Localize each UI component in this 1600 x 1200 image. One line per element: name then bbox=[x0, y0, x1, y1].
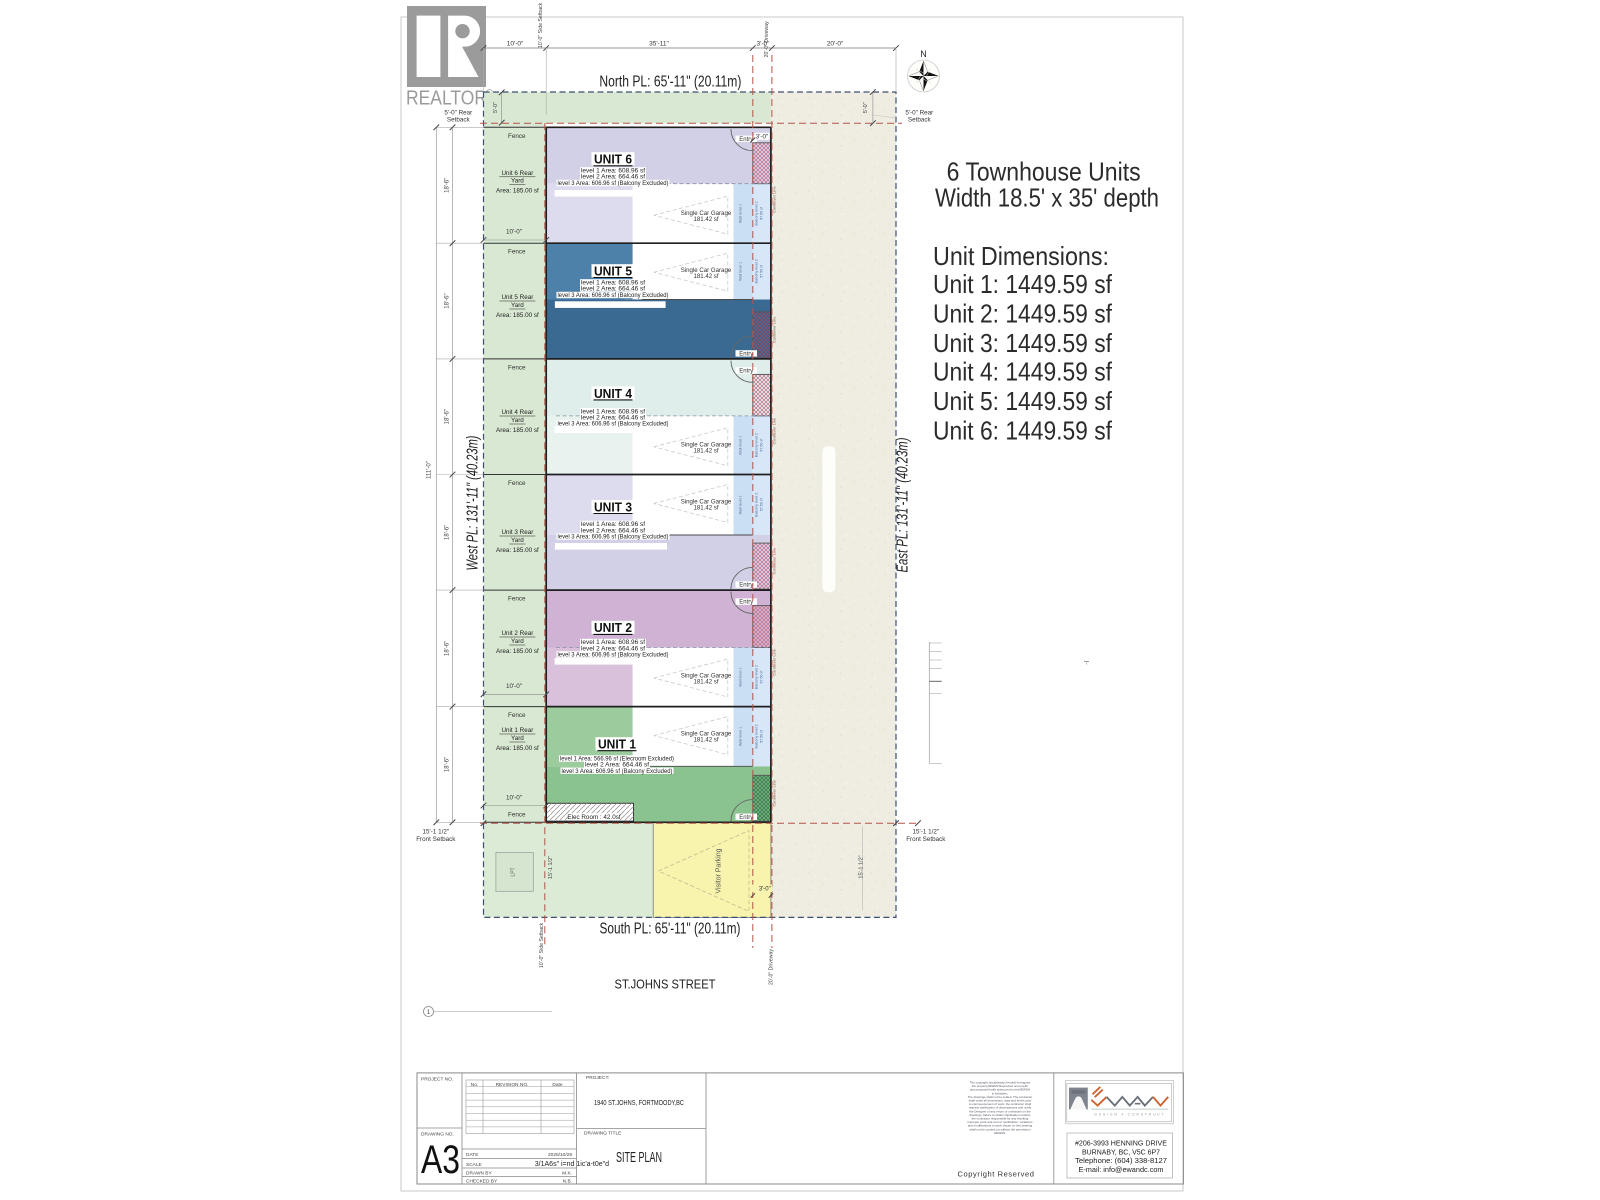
svg-text:18'-6": 18'-6" bbox=[444, 409, 450, 424]
svg-text:Unit 6: 1449.59 sf: Unit 6: 1449.59 sf bbox=[933, 416, 1113, 446]
svg-text:181.42 sf: 181.42 sf bbox=[693, 679, 718, 686]
svg-text:SITE PLAN: SITE PLAN bbox=[616, 1150, 662, 1166]
svg-text:Wall level 1: Wall level 1 bbox=[739, 727, 743, 746]
svg-text:Fence: Fence bbox=[508, 712, 526, 719]
svg-text:57.50 sf: 57.50 sf bbox=[760, 498, 764, 511]
svg-text:Unit 4 Rear: Unit 4 Rear bbox=[501, 409, 533, 416]
svg-text:Wall level 1: Wall level 1 bbox=[739, 262, 743, 281]
svg-text:181.42 sf: 181.42 sf bbox=[693, 216, 718, 223]
svg-text:North PL: 65'-11" (20.11m): North PL: 65'-11" (20.11m) bbox=[599, 74, 741, 91]
svg-text:Wall level 1: Wall level 1 bbox=[739, 495, 743, 514]
svg-text:Unit 4: 1449.59 sf: Unit 4: 1449.59 sf bbox=[933, 357, 1113, 387]
svg-text:Yard: Yard bbox=[511, 302, 524, 309]
svg-text:Fence: Fence bbox=[508, 133, 526, 140]
svg-text:Balcony level 2: Balcony level 2 bbox=[755, 665, 759, 689]
svg-text:Wall level 1: Wall level 1 bbox=[739, 204, 743, 223]
svg-text:Unit 3 Rear: Unit 3 Rear bbox=[501, 529, 533, 536]
svg-text:Telephone: (604) 338-8127: Telephone: (604) 338-8127 bbox=[1075, 1156, 1167, 1165]
svg-text:Yard: Yard bbox=[511, 178, 524, 185]
svg-text:REVISION NO.: REVISION NO. bbox=[496, 1082, 529, 1088]
svg-text:N.B.: N.B. bbox=[563, 1179, 572, 1185]
svg-text:57.50 sf: 57.50 sf bbox=[760, 207, 764, 220]
svg-text:10'-0": 10'-0" bbox=[507, 41, 524, 48]
svg-text:181.42 sf: 181.42 sf bbox=[693, 505, 718, 512]
svg-text:111'-0": 111'-0" bbox=[427, 461, 433, 479]
svg-text:18'-6": 18'-6" bbox=[444, 525, 450, 540]
svg-text:level 3 Area: 606.96 sf (Balco: level 3 Area: 606.96 sf (Balcony Exclude… bbox=[562, 768, 673, 775]
svg-text:57.50 sf: 57.50 sf bbox=[760, 265, 764, 278]
svg-text:#206-3993 HENNING DRIVE: #206-3993 HENNING DRIVE bbox=[1075, 1139, 1167, 1148]
svg-text:A3: A3 bbox=[421, 1138, 460, 1182]
svg-text:Date: Date bbox=[552, 1082, 562, 1088]
svg-text:Fence: Fence bbox=[508, 812, 526, 819]
svg-text:Area: 185.00 sf: Area: 185.00 sf bbox=[496, 547, 539, 554]
svg-text:E-mail: info@ewandc.com: E-mail: info@ewandc.com bbox=[1079, 1165, 1164, 1174]
svg-text:Area: 185.00 sf: Area: 185.00 sf bbox=[496, 427, 539, 434]
svg-text:Unit 2: 1449.59 sf: Unit 2: 1449.59 sf bbox=[933, 298, 1113, 328]
svg-text:Setback: Setback bbox=[908, 116, 932, 123]
svg-text:15'-1 1/2": 15'-1 1/2" bbox=[913, 829, 940, 836]
svg-text:level 3 Area: 606.96 sf (Balco: level 3 Area: 606.96 sf (Balcony Exclude… bbox=[558, 292, 669, 299]
svg-text:Front Setback: Front Setback bbox=[906, 836, 946, 843]
svg-text:level 3 Area: 606.96 sf (Balco: level 3 Area: 606.96 sf (Balcony Exclude… bbox=[558, 180, 669, 187]
svg-text:Balcony level 2: Balcony level 2 bbox=[755, 259, 759, 283]
svg-text:20'-0" Driveway: 20'-0" Driveway bbox=[769, 949, 775, 985]
svg-text:PROJECT NO.: PROJECT NO. bbox=[421, 1077, 453, 1083]
svg-text:Unit 1 Rear: Unit 1 Rear bbox=[501, 727, 533, 734]
svg-text:level 3 Area: 606.96 sf (Balco: level 3 Area: 606.96 sf (Balcony Exclude… bbox=[558, 421, 669, 428]
svg-text:18'-6": 18'-6" bbox=[444, 757, 450, 772]
svg-text:PROJECT:: PROJECT: bbox=[586, 1075, 609, 1081]
svg-text:DRAWN BY: DRAWN BY bbox=[466, 1171, 492, 1177]
svg-text:BURNABY, BC, V5C 6P7: BURNABY, BC, V5C 6P7 bbox=[1082, 1147, 1160, 1156]
svg-text:Wall level 1: Wall level 1 bbox=[739, 667, 743, 686]
svg-text:57.50 sf: 57.50 sf bbox=[760, 671, 764, 684]
svg-text:10'-0" Side Setback: 10'-0" Side Setback bbox=[539, 922, 545, 968]
svg-text:Copyright Reserved: Copyright Reserved bbox=[957, 1169, 1034, 1178]
svg-text:Unit Dimensions:: Unit Dimensions: bbox=[933, 241, 1109, 271]
svg-text:DRAWING NO.: DRAWING NO. bbox=[421, 1132, 454, 1138]
svg-text:Unit 6 Rear: Unit 6 Rear bbox=[501, 170, 533, 177]
svg-text:57.50 sf: 57.50 sf bbox=[760, 439, 764, 452]
svg-text:Balcony level 2: Balcony level 2 bbox=[755, 724, 759, 748]
svg-text:15'-1 1/2": 15'-1 1/2" bbox=[423, 829, 450, 836]
svg-text:Fence: Fence bbox=[508, 480, 526, 487]
svg-text:East PL: 131'-11" (40.23m): East PL: 131'-11" (40.23m) bbox=[894, 438, 911, 573]
svg-text:3/1A6s" i=nd 1ic'a-t0e"d: 3/1A6s" i=nd 1ic'a-t0e"d bbox=[535, 1161, 609, 1168]
svg-text:UNIT 3: UNIT 3 bbox=[594, 500, 632, 514]
svg-text:10'-0": 10'-0" bbox=[506, 683, 522, 690]
svg-text:Unit 5: 1449.59 sf: Unit 5: 1449.59 sf bbox=[933, 386, 1113, 416]
svg-text:3'-0": 3'-0" bbox=[759, 886, 771, 892]
svg-text:5'-0" Rear: 5'-0" Rear bbox=[444, 109, 472, 116]
svg-text:No.: No. bbox=[471, 1082, 478, 1088]
svg-text:57.50 sf: 57.50 sf bbox=[760, 730, 764, 743]
svg-text:10'-0" Side Setback: 10'-0" Side Setback bbox=[538, 2, 544, 48]
svg-text:Visitor Parking: Visitor Parking bbox=[715, 848, 722, 893]
svg-text:5'-0": 5'-0" bbox=[863, 102, 869, 113]
svg-text:DRAWING TITLE: DRAWING TITLE bbox=[584, 1131, 621, 1137]
svg-text:1940 ST.JOHNS, FORTMOODY,BC: 1940 ST.JOHNS, FORTMOODY,BC bbox=[594, 1098, 684, 1107]
svg-text:Fence: Fence bbox=[508, 596, 526, 603]
svg-text:Unit 5 Rear: Unit 5 Rear bbox=[501, 294, 533, 301]
svg-text:Yard: Yard bbox=[511, 735, 524, 742]
svg-text:2025/10/29: 2025/10/29 bbox=[548, 1152, 572, 1158]
svg-text:Fence: Fence bbox=[508, 249, 526, 256]
svg-text:Elec Room : 42.0sf: Elec Room : 42.0sf bbox=[567, 814, 620, 821]
svg-text:Yard: Yard bbox=[511, 638, 524, 645]
svg-text:18'-6": 18'-6" bbox=[444, 178, 450, 193]
svg-text:Entry: Entry bbox=[739, 369, 753, 375]
svg-text:M.K.: M.K. bbox=[562, 1171, 572, 1177]
svg-text:N: N bbox=[920, 49, 927, 59]
svg-text:Unit 3: 1449.59 sf: Unit 3: 1449.59 sf bbox=[933, 328, 1113, 358]
svg-text:LPT: LPT bbox=[511, 867, 517, 876]
svg-text:10'-0": 10'-0" bbox=[506, 229, 522, 236]
svg-text:CHECKED BY: CHECKED BY bbox=[466, 1179, 498, 1185]
svg-text:level 3 Area: 606.96 sf (Balco: level 3 Area: 606.96 sf (Balcony Exclude… bbox=[558, 652, 669, 659]
svg-text:Yard: Yard bbox=[511, 537, 524, 544]
svg-text:Unit 1: 1449.59 sf: Unit 1: 1449.59 sf bbox=[933, 269, 1113, 299]
svg-text:10'-0": 10'-0" bbox=[506, 795, 522, 802]
svg-text:West PL: 131'-11" (40.23m): West PL: 131'-11" (40.23m) bbox=[465, 436, 482, 571]
svg-text:REALTOR: REALTOR bbox=[406, 87, 487, 110]
svg-text:UNIT 5: UNIT 5 bbox=[594, 265, 632, 279]
svg-text:20'-0": 20'-0" bbox=[827, 41, 844, 48]
svg-text:18'-6": 18'-6" bbox=[444, 641, 450, 656]
svg-text:Front Setback: Front Setback bbox=[416, 836, 456, 843]
svg-text:Area: 185.00 sf: Area: 185.00 sf bbox=[496, 745, 539, 752]
svg-text:Entry: Entry bbox=[739, 815, 753, 821]
svg-text:Unit 2 Rear: Unit 2 Rear bbox=[501, 630, 533, 637]
svg-text:15'-1 1/2": 15'-1 1/2" bbox=[548, 856, 554, 879]
svg-text:Entry: Entry bbox=[739, 583, 753, 589]
svg-text:181.42 sf: 181.42 sf bbox=[693, 273, 718, 280]
svg-text:5'-0" Rear: 5'-0" Rear bbox=[905, 109, 933, 116]
svg-text:Balcony level 2: Balcony level 2 bbox=[755, 201, 759, 225]
svg-text:Area: 185.00 sf: Area: 185.00 sf bbox=[496, 312, 539, 319]
svg-text:35'-11": 35'-11" bbox=[649, 41, 669, 48]
svg-text:3'-0": 3'-0" bbox=[756, 133, 769, 140]
svg-text:Wall level 1: Wall level 1 bbox=[739, 436, 743, 455]
svg-text:Yard: Yard bbox=[511, 417, 524, 424]
svg-text:Setback: Setback bbox=[447, 116, 471, 123]
svg-text:UNIT 2: UNIT 2 bbox=[594, 621, 632, 635]
svg-text:level 3 Area: 606.96 sf (Balco: level 3 Area: 606.96 sf (Balcony Exclude… bbox=[558, 534, 669, 541]
svg-text:Area: 185.00 sf: Area: 185.00 sf bbox=[496, 648, 539, 655]
svg-text:181.42 sf: 181.42 sf bbox=[693, 737, 718, 744]
svg-text:Width 18.5' x 35' depth: Width 18.5' x 35' depth bbox=[935, 183, 1159, 213]
svg-text:20'-0" Driveway: 20'-0" Driveway bbox=[764, 21, 770, 57]
svg-text:Entry: Entry bbox=[739, 352, 753, 358]
svg-text:UNIT 6: UNIT 6 bbox=[594, 153, 632, 167]
svg-text:181.42 sf: 181.42 sf bbox=[693, 448, 718, 455]
svg-text:DESIGN 4 CONSTRUCT: DESIGN 4 CONSTRUCT bbox=[1095, 1112, 1166, 1116]
svg-text:ofEWAN.: ofEWAN. bbox=[994, 1131, 1006, 1135]
svg-text:Fence: Fence bbox=[508, 364, 526, 371]
svg-text:SCALE: SCALE bbox=[466, 1162, 482, 1168]
svg-text:Balcony level 2: Balcony level 2 bbox=[755, 493, 759, 517]
svg-text:15'-1 1/2": 15'-1 1/2" bbox=[859, 855, 865, 878]
svg-text:South PL: 65'-11" (20.11m): South PL: 65'-11" (20.11m) bbox=[600, 921, 741, 938]
svg-text:Balcony level 2: Balcony level 2 bbox=[755, 433, 759, 457]
svg-text:5'-0": 5'-0" bbox=[493, 102, 499, 113]
svg-text:UNIT 4: UNIT 4 bbox=[594, 387, 632, 401]
svg-text:Entry: Entry bbox=[739, 600, 753, 606]
svg-text:DATE: DATE bbox=[466, 1152, 478, 1158]
svg-text:18'-6": 18'-6" bbox=[444, 293, 450, 308]
svg-text:ST.JOHNS STREET: ST.JOHNS STREET bbox=[615, 978, 716, 992]
svg-text:Area: 185.00 sf: Area: 185.00 sf bbox=[496, 188, 539, 195]
svg-text:UNIT 1: UNIT 1 bbox=[598, 738, 636, 752]
